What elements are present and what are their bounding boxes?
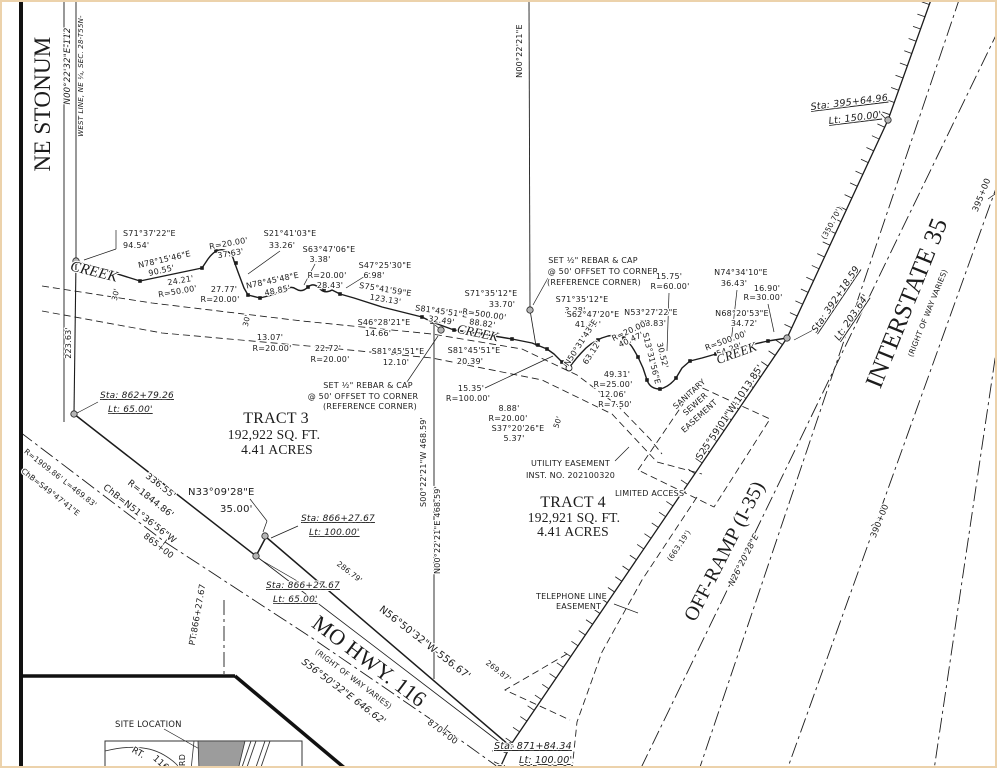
hatch-tick [856, 171, 863, 174]
plat-label: PT:866+27.67 [188, 583, 209, 646]
plat-label: 14.66' [365, 329, 391, 338]
leader-line [248, 251, 280, 274]
plat-label: 192,921 SQ. FT. [528, 510, 620, 525]
hatch-tick [850, 183, 857, 186]
hatch-tick [776, 340, 783, 344]
plat-label: N53°27'22"E [624, 308, 678, 317]
hatch-tick [586, 620, 593, 624]
leader-line [614, 604, 638, 613]
plat-label: 12.10' [383, 358, 409, 367]
plat-label: SET ½" REBAR & CAP [548, 256, 637, 265]
hatch-tick [535, 695, 542, 699]
plat-label: 35.00' [220, 504, 253, 515]
plat-label: NE STONUM [30, 37, 55, 172]
plat-label: 13.07' [257, 333, 283, 342]
inset-road-line [255, 741, 265, 766]
survey-plat-sheet: NE STONUMN00°22'32"E-112WEST LINE, NE ¼,… [0, 0, 997, 768]
plat-label: INST. NO. 202100320 [526, 471, 615, 480]
plat-label: Lt: 150.00' [828, 110, 882, 127]
plat-label: TRACT 4 [540, 494, 606, 511]
leader-line [667, 293, 669, 351]
plat-label: S46°28'21"E [358, 318, 411, 327]
plat-label: TELEPHONE LINE [535, 592, 607, 601]
survey-point [306, 285, 310, 289]
hatch-tick [909, 39, 917, 42]
boundary-line [74, 261, 76, 414]
hatch-tick [845, 195, 852, 198]
plat-label: 27.77' [211, 285, 237, 294]
plat-label: LIMITED ACCESS [615, 489, 684, 498]
plat-label: Sta: 385+63.04 [496, 764, 574, 766]
survey-point [338, 292, 342, 296]
plat-label: @ 50' OFFSET TO CORNER [548, 267, 659, 276]
plat-label: R=20.00' [489, 414, 528, 423]
survey-point [688, 359, 692, 363]
plat-label: N74°34'10"E [714, 268, 768, 277]
plat-label: 4.41 ACRES [537, 524, 609, 539]
plat-label: 192,922 SQ. FT. [228, 427, 320, 442]
plat-label: RD [178, 754, 187, 766]
plat-label: SET ½" REBAR & CAP [323, 381, 412, 390]
plat-label: 20.39' [457, 357, 483, 366]
plat-label: R=100.00' [446, 394, 490, 403]
plat-label: R=20.00' [308, 271, 347, 280]
plat-label: 269.87' [484, 658, 513, 683]
plat-label: S71°35'12"E [556, 295, 609, 304]
survey-point [658, 387, 662, 391]
monument-marker [71, 411, 77, 417]
hatch-tick [520, 717, 527, 721]
easement-line [505, 654, 570, 720]
plat-label: R=60.00' [651, 282, 690, 291]
monument-marker [262, 533, 268, 539]
hatch-tick [896, 75, 904, 78]
boundary-line [266, 537, 510, 746]
plat-label: EASEMENT [556, 602, 601, 611]
leader-line [84, 249, 116, 260]
hatch-tick [795, 301, 802, 304]
plat-label: 30' [241, 314, 252, 328]
plat-label: 33.70' [489, 300, 515, 309]
survey-point [234, 261, 238, 265]
monument-marker [253, 553, 259, 559]
hatch-tick [872, 136, 879, 139]
plat-label: R=20.00' [201, 295, 240, 304]
plat-label: S47°25'30"E [359, 261, 412, 270]
plat-label: Sta: 862+79.26 [100, 391, 174, 401]
centerline [934, 332, 995, 766]
hatch-tick [571, 641, 578, 645]
hatch-tick [644, 534, 651, 538]
hatch-tick [904, 51, 912, 54]
plat-label: Lt: 65.00' [108, 405, 153, 415]
hatch-tick [542, 684, 549, 688]
plat-label: TRACT 3 [243, 410, 309, 427]
plat-label: Lt: 100.00' [309, 528, 360, 538]
monument-marker [784, 335, 790, 341]
survey-point [138, 279, 142, 283]
leader-line [271, 526, 298, 538]
hatch-tick [891, 88, 899, 91]
survey-point [258, 296, 262, 300]
survey-point [510, 337, 514, 341]
leader-line [164, 729, 203, 751]
hatch-tick [917, 14, 925, 17]
plat-label: S62°47'20"E [567, 310, 620, 319]
plat-label: (663.19') [665, 528, 693, 563]
survey-point [674, 376, 678, 380]
plat-label: N00°22'32"E-112 [63, 28, 73, 105]
plat-label: OFF-RAMP (I-35) [680, 478, 769, 625]
leader-line [768, 304, 774, 332]
plat-label: 15.35' [458, 384, 484, 393]
hatch-tick [922, 2, 930, 5]
plat-label: R=50.00' [158, 284, 198, 300]
plat-label: 8.88' [498, 404, 519, 413]
plat-drawing: NE STONUMN00°22'32"E-112WEST LINE, NE ¼,… [2, 2, 995, 766]
survey-point [200, 266, 204, 270]
plat-label: (REFERENCE CORNER) [323, 402, 417, 411]
monument-marker [438, 327, 444, 333]
plat-label: 116 [150, 754, 170, 766]
leader-line [261, 560, 299, 582]
plat-label: 3.38' [309, 255, 330, 264]
plat-label: S81°45'51"E [372, 347, 425, 356]
survey-point [246, 293, 250, 297]
hatch-tick [681, 480, 688, 484]
survey-point [645, 378, 649, 382]
plat-label: 4.41 ACRES [241, 442, 313, 457]
plat-label: R=20.00' [311, 355, 350, 364]
monument-marker [885, 117, 891, 123]
leader-line [407, 336, 438, 382]
plat-label: S71°35'12"E [465, 289, 518, 298]
hatch-tick [877, 124, 884, 127]
hatch-tick [801, 289, 808, 292]
hatch-tick [615, 577, 622, 581]
plat-label: 94.54' [123, 241, 149, 250]
plat-label: R=30.00' [744, 293, 783, 302]
plat-label: 5.37' [503, 434, 524, 443]
leader-line [263, 521, 267, 532]
plat-label: S81°45'51"E [448, 346, 501, 355]
hatch-tick [564, 652, 571, 656]
hatch-tick [806, 277, 813, 280]
plat-label: 395+00 [971, 177, 994, 214]
plat-label: 50' [551, 415, 563, 429]
plat-label: 49.31' [604, 370, 630, 379]
survey-point [545, 347, 549, 351]
hatch-tick [823, 242, 830, 245]
plat-label: N00°22'21"E [515, 24, 524, 78]
centerline [20, 432, 502, 766]
plat-label: 28.43' [317, 281, 343, 290]
hatch-tick [817, 254, 824, 257]
hatch-tick [784, 324, 791, 327]
boundary-line [529, 2, 530, 310]
plat-label: 22.72' [315, 344, 341, 353]
plat-label: 16.90' [754, 284, 780, 293]
plat-label: 390+00 [869, 503, 892, 540]
plat-label: S00°22'21"W 468.59' [419, 417, 428, 507]
hatch-tick [861, 159, 868, 162]
survey-point [536, 343, 540, 347]
plat-label: 36.43' [721, 279, 747, 288]
plat-label: N33°09'28"E [188, 487, 255, 498]
hatch-tick [623, 566, 630, 570]
plat-label: UTILITY EASEMENT [531, 459, 610, 468]
boundary-line [530, 310, 536, 346]
centerline [787, 180, 995, 766]
plat-label: R=7.50' [598, 400, 632, 409]
hatch-tick [882, 112, 890, 115]
plat-label: (REFERENCE CORNER) [547, 278, 641, 287]
hatch-tick [579, 631, 586, 635]
plat-label: 6.98' [363, 271, 384, 280]
plat-label: N00°22'21"E 468.59' [433, 486, 442, 574]
hatch-tick [769, 351, 776, 355]
leader-line [533, 278, 548, 305]
hatch-tick [513, 727, 520, 731]
leader-line [615, 447, 629, 461]
plat-label: @ 50' OFFSET TO CORNER [308, 392, 419, 401]
hatch-tick [652, 523, 659, 527]
hatch-tick [913, 26, 921, 29]
hatch-tick [866, 147, 873, 150]
hatch-tick [666, 501, 673, 505]
hatch-tick [630, 555, 637, 559]
leader-line [79, 402, 98, 412]
hatch-tick [557, 663, 564, 667]
plat-label: S21°41'03"E [264, 229, 317, 238]
plat-label: SITE LOCATION [115, 720, 182, 730]
inset-site-parcel [198, 741, 245, 766]
plat-label: S63°47'06"E [303, 245, 356, 254]
hatch-tick [637, 544, 644, 548]
plat-label: WEST LINE, NE ¼, SEC. 28-T55N- [77, 15, 85, 137]
plat-label: R=25.00' [594, 380, 633, 389]
hatch-tick [608, 588, 615, 592]
plat-label: S37°20'26"E [492, 424, 545, 433]
plat-label: 30' [110, 288, 121, 302]
plat-label: N68°20'53"E [715, 309, 769, 318]
plat-label: 33.26' [269, 241, 295, 250]
centerline [640, 29, 995, 766]
hatch-tick [761, 362, 768, 366]
plat-label: 15.75' [656, 272, 682, 281]
hatch-tick [528, 706, 535, 710]
plat-label: Sta: 866+27.67 [301, 514, 375, 524]
plat-label: Sta: 866+27.67 [266, 581, 340, 591]
survey-point [452, 328, 456, 332]
monument-marker [527, 307, 533, 313]
plat-label: 12.06' [600, 390, 626, 399]
plat-label: Sta: 392+18.59 [810, 264, 863, 335]
hatch-tick [900, 63, 908, 66]
plat-label: R=20.00' [253, 344, 292, 353]
survey-point [636, 355, 640, 359]
inset-road-line [246, 741, 256, 766]
hatch-tick [790, 313, 797, 316]
leader-line [485, 356, 553, 388]
plat-label: Lt: 65.00' [273, 595, 318, 605]
plat-label: 870+00 [425, 718, 459, 747]
inset-road-line [260, 741, 270, 766]
plat-label: 34.72' [731, 319, 757, 328]
plat-label: S71°37'22"E [123, 229, 176, 238]
survey-point [420, 315, 424, 319]
hatch-tick [550, 674, 557, 678]
hatch-tick [812, 265, 819, 268]
survey-point [766, 339, 770, 343]
plat-label: Sta: 871+84.34 [494, 741, 572, 752]
plat-label: INTERSTATE 35 [861, 214, 954, 391]
plat-label: 223.63' [64, 327, 73, 359]
hatch-tick [659, 512, 666, 516]
